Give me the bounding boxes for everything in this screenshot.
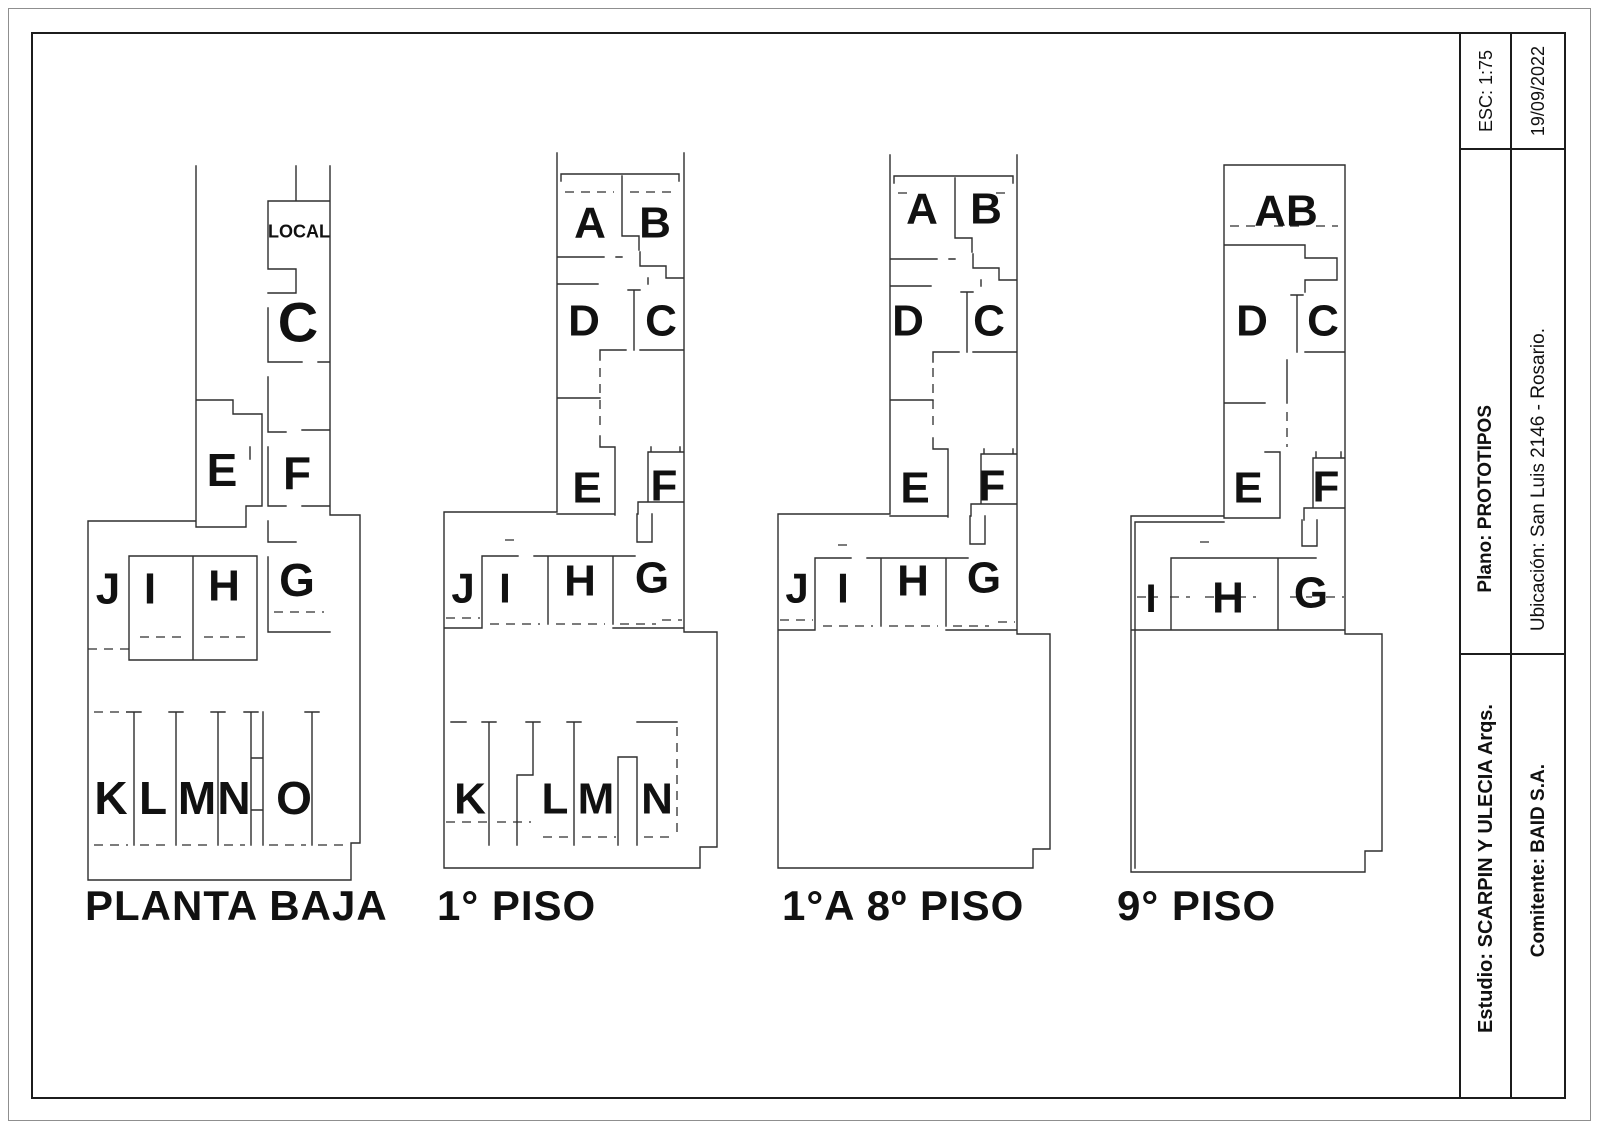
room-label-piso-1-k: K	[454, 774, 486, 823]
plan-title-piso-1: 1° PISO	[437, 882, 596, 929]
estudio-text: Estudio: SCARPIN Y ULECIA Arqs.	[1476, 704, 1496, 1033]
room-label-piso-1-i: I	[499, 565, 511, 612]
scale-text: ESC: 1:75	[1477, 50, 1495, 132]
title-block: ESC: 1:75 19/09/2022 Plano: PROTOTIPOS U…	[1459, 32, 1566, 1099]
plan-title-planta-baja: PLANTA BAJA	[85, 882, 388, 929]
room-label-planta-baja-h: H	[208, 561, 240, 610]
plano-text: Plano: PROTOTIPOS	[1476, 405, 1495, 593]
room-label-planta-baja-j: J	[96, 564, 120, 613]
room-label-planta-baja-n: N	[217, 772, 250, 824]
room-label-piso-1a8-d: D	[892, 296, 924, 345]
room-label-piso-1-d: D	[568, 296, 600, 345]
room-label-planta-baja-l: L	[139, 772, 167, 824]
titleblock-estudio-cell: Estudio: SCARPIN Y ULECIA Arqs.	[1461, 655, 1512, 1097]
room-label-piso-1-e: E	[572, 463, 601, 512]
room-label-piso-1-f: F	[651, 461, 678, 510]
room-label-piso-1-l: L	[542, 774, 569, 823]
room-label-planta-baja-c: C	[278, 291, 318, 354]
room-label-planta-baja-e: E	[207, 444, 238, 496]
room-label-piso-1a8-j: J	[785, 565, 808, 612]
room-label-piso-1-c: C	[645, 296, 677, 345]
floor-plans-svg: LOCALCEFJIHGKLMNOPLANTA BAJA ABDCEFJIHGK…	[0, 0, 1600, 1130]
drawing-sheet: LOCALCEFJIHGKLMNOPLANTA BAJA ABDCEFJIHGK…	[0, 0, 1600, 1130]
room-label-piso-9-ab: AB	[1254, 186, 1318, 235]
plan-planta-baja: LOCALCEFJIHGKLMNOPLANTA BAJA	[85, 166, 388, 929]
room-label-piso-1a8-h: H	[897, 556, 929, 605]
plan-piso-1: ABDCEFJIHGKLMN1° PISO	[437, 153, 717, 929]
plan-piso-9: ABDCEFIHG9° PISO	[1117, 165, 1382, 929]
room-label-piso-9-e: E	[1233, 463, 1262, 512]
plan-title-piso-1a8: 1°A 8º PISO	[782, 882, 1024, 929]
room-label-piso-9-c: C	[1307, 296, 1339, 345]
titleblock-comitente-cell: Comitente: BAID S.A.	[1512, 655, 1564, 1097]
room-label-piso-1a8-b: B	[970, 184, 1002, 233]
room-label-planta-baja-g: G	[279, 554, 315, 606]
room-label-planta-baja-local: LOCAL	[268, 221, 330, 241]
room-label-piso-9-i: I	[1145, 577, 1156, 621]
room-label-planta-baja-o: O	[276, 772, 312, 824]
room-label-piso-1-m: M	[578, 774, 615, 823]
room-label-piso-9-g: G	[1294, 568, 1328, 617]
titleblock-date-cell: 19/09/2022	[1512, 34, 1564, 150]
plan-title-piso-9: 9° PISO	[1117, 882, 1276, 929]
room-label-piso-1a8-i: I	[837, 565, 849, 612]
room-label-piso-1-a: A	[574, 198, 606, 247]
room-label-piso-1a8-g: G	[967, 553, 1001, 602]
room-label-planta-baja-m: M	[178, 772, 216, 824]
room-label-piso-1a8-c: C	[973, 296, 1005, 345]
room-label-piso-9-h: H	[1212, 573, 1244, 622]
plan-piso-9-dashed-lines	[1137, 226, 1344, 597]
room-label-planta-baja-i: I	[144, 564, 156, 613]
titleblock-scale-cell: ESC: 1:75	[1461, 34, 1512, 150]
ubicacion-text: Ubicación: San Luis 2146 - Rosario.	[1529, 328, 1548, 631]
room-label-piso-1a8-a: A	[906, 184, 938, 233]
room-label-piso-1-g: G	[635, 553, 669, 602]
room-label-piso-1-b: B	[639, 198, 671, 247]
titleblock-ubicacion-cell: Ubicación: San Luis 2146 - Rosario.	[1512, 150, 1564, 655]
date-text: 19/09/2022	[1529, 46, 1547, 136]
room-label-planta-baja-k: K	[94, 772, 127, 824]
plan-piso-1a8: ABDCEFJIHG1°A 8º PISO	[778, 155, 1050, 929]
room-label-piso-1-h: H	[564, 556, 596, 605]
comitente-text: Comitente: BAID S.A.	[1529, 764, 1548, 957]
plan-piso-9-walls	[1131, 165, 1382, 872]
room-label-piso-1a8-e: E	[900, 463, 929, 512]
room-label-piso-1a8-f: F	[979, 461, 1006, 510]
titleblock-plano-cell: Plano: PROTOTIPOS	[1461, 150, 1512, 655]
room-label-planta-baja-f: F	[283, 447, 311, 499]
room-label-piso-1-n: N	[641, 774, 673, 823]
room-label-piso-9-f: F	[1313, 462, 1340, 511]
room-label-piso-9-d: D	[1236, 296, 1268, 345]
room-label-piso-1-j: J	[451, 565, 474, 612]
